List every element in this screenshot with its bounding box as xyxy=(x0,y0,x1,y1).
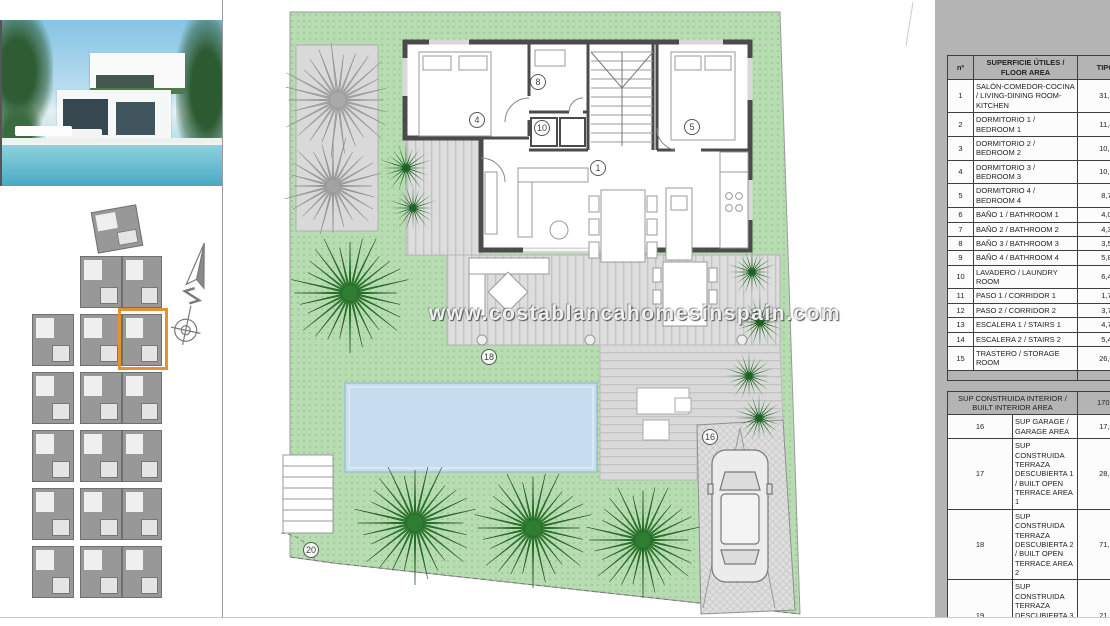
row-value: 10,25 xyxy=(1078,136,1110,160)
room-label-20: 20 xyxy=(306,545,316,555)
room-label-16: 16 xyxy=(705,432,715,442)
row-number: 5 xyxy=(948,184,974,208)
row-description: DORMITORIO 4 / BEDROOM 4 xyxy=(974,184,1078,208)
photo-villa-upper-floor xyxy=(90,53,185,91)
photo-upper-window xyxy=(96,75,155,88)
row-number: 4 xyxy=(948,160,974,184)
room-label-18: 18 xyxy=(484,352,494,362)
kitchen-sink xyxy=(671,196,687,210)
area-table-panel: nº SUPERFICIE ÚTILES / FLOOR AREA TIPO 2… xyxy=(935,0,1110,617)
site-plan-plot xyxy=(80,314,122,366)
row-description: PASO 1 / CORRIDOR 1 xyxy=(974,289,1078,303)
row-number: 11 xyxy=(948,289,974,303)
row-description: LAVADERO / LAUNDRY ROOM xyxy=(974,265,1078,289)
site-plan-plot xyxy=(32,372,74,424)
table-row: 17 SUP CONSTRUIDA TERRAZA DESCUBIERTA 1 … xyxy=(948,439,1110,510)
selected-plot-highlight xyxy=(118,308,168,370)
deck-column xyxy=(585,335,595,345)
site-plan-plot xyxy=(80,372,122,424)
compass-zigzag xyxy=(183,286,202,305)
row-number: 10 xyxy=(948,265,974,289)
row-number: 13 xyxy=(948,318,974,332)
spacer-row xyxy=(948,370,1110,380)
row-description: DORMITORIO 2 / BEDROOM 2 xyxy=(974,136,1078,160)
row-value: 28,35 xyxy=(1078,439,1110,510)
row-value: 6,45 xyxy=(1078,265,1110,289)
built-interior-label: SUP CONSTRUIDA INTERIOR / BUILT INTERIOR… xyxy=(948,391,1078,415)
table-row: 9 BAÑO 4 / BATHROOM 4 5,80 xyxy=(948,251,1110,265)
row-description: BAÑO 1 / BATHROOM 1 xyxy=(974,208,1078,222)
row-number: 8 xyxy=(948,236,974,250)
row-description: PASO 2 / CORRIDOR 2 xyxy=(974,303,1078,317)
table-row: 4 DORMITORIO 3 / BEDROOM 3 10,10 xyxy=(948,160,1110,184)
table-row: 8 BAÑO 3 / BATHROOM 3 3,50 xyxy=(948,236,1110,250)
row-description: DORMITORIO 3 / BEDROOM 3 xyxy=(974,160,1078,184)
watermark: www.costablancahomesinspain.com xyxy=(405,302,865,326)
row-description: SUP CONSTRUIDA TERRAZA DESCUBIERTA 3 / B… xyxy=(1013,580,1078,617)
row-number: 16 xyxy=(948,415,1013,439)
north-arrow-compass xyxy=(165,238,223,356)
row-value: 71,15 xyxy=(1078,509,1110,580)
neighbor-boundary-line xyxy=(906,2,913,46)
row-value: 8,70 xyxy=(1078,184,1110,208)
row-number: 9 xyxy=(948,251,974,265)
photo-swimming-pool xyxy=(2,143,222,186)
row-value: 1,70 xyxy=(1078,289,1110,303)
fridge xyxy=(720,152,748,172)
table-row: 19 SUP CONSTRUIDA TERRAZA DESCUBIERTA 3 … xyxy=(948,580,1110,617)
site-plan-plot xyxy=(32,546,74,598)
table-row: 15 TRASTERO / STORAGE ROOM 26,05 xyxy=(948,346,1110,370)
site-plan-plot xyxy=(32,430,74,482)
row-description: BAÑO 3 / BATHROOM 3 xyxy=(974,236,1078,250)
row-description: SUP CONSTRUIDA TERRAZA DESCUBIERTA 1 / B… xyxy=(1013,439,1078,510)
table-row: 6 BAÑO 1 / BATHROOM 1 4,05 xyxy=(948,208,1110,222)
room-label-5: 5 xyxy=(689,122,694,132)
row-number: 2 xyxy=(948,113,974,137)
row-number: 6 xyxy=(948,208,974,222)
table-row: 18 SUP CONSTRUIDA TERRAZA DESCUBIERTA 2 … xyxy=(948,509,1110,580)
table-row: 3 DORMITORIO 2 / BEDROOM 2 10,25 xyxy=(948,136,1110,160)
site-plan-plot xyxy=(80,546,122,598)
row-description: ESCALERA 2 / STAIRS 2 xyxy=(974,332,1078,346)
villa-render-photo xyxy=(2,20,222,186)
row-value: 5,40 xyxy=(1078,332,1110,346)
urbanization-site-plan xyxy=(20,220,170,605)
sofa xyxy=(518,168,588,182)
table-row: 13 ESCALERA 1 / STAIRS 1 4,70 xyxy=(948,318,1110,332)
row-description: ESCALERA 1 / STAIRS 1 xyxy=(974,318,1078,332)
row-description: BAÑO 2 / BATHROOM 2 xyxy=(974,222,1078,236)
site-plan-plot xyxy=(80,256,122,308)
site-plan-plot xyxy=(122,372,162,424)
photo-loungers xyxy=(15,126,72,136)
table-row: 2 DORMITORIO 1 / BEDROOM 1 11,40 xyxy=(948,113,1110,137)
bathroom-basin xyxy=(535,50,565,66)
row-number: 1 xyxy=(948,80,974,113)
table-row: 14 ESCALERA 2 / STAIRS 2 5,40 xyxy=(948,332,1110,346)
coffee-table xyxy=(550,221,568,239)
tv-bench xyxy=(485,172,497,234)
row-value: 4,05 xyxy=(1078,208,1110,222)
row-description: SALÓN-COMEDOR-COCINA / LIVING-DINING ROO… xyxy=(974,80,1078,113)
car-top-view xyxy=(708,450,772,582)
floor-plan-sheet: { "plan": { "watermark": "www.costablanc… xyxy=(0,0,1110,626)
table-row: 11 PASO 1 / CORRIDOR 1 1,70 xyxy=(948,289,1110,303)
row-number: 19 xyxy=(948,580,1013,617)
col-number-header: nº xyxy=(948,56,974,80)
swimming-pool xyxy=(345,383,597,472)
row-number: 7 xyxy=(948,222,974,236)
site-plan-plot xyxy=(122,488,162,540)
row-description: DORMITORIO 1 / BEDROOM 1 xyxy=(974,113,1078,137)
site-plan-plot xyxy=(122,430,162,482)
row-value: 11,40 xyxy=(1078,113,1110,137)
floor-area-table: nº SUPERFICIE ÚTILES / FLOOR AREA TIPO 2… xyxy=(947,55,1110,381)
site-plan-plot xyxy=(80,430,122,482)
row-value: 3,75 xyxy=(1078,303,1110,317)
row-value: 26,05 xyxy=(1078,346,1110,370)
table-row: 16 SUP GARAGE / GARAGE AREA 17,05 xyxy=(948,415,1110,439)
page-bottom-rule xyxy=(0,617,1110,618)
site-plan-plot xyxy=(122,546,162,598)
row-description: BAÑO 4 / BATHROOM 4 xyxy=(974,251,1078,265)
row-value: 21,65 xyxy=(1078,580,1110,617)
table-row: 1 SALÓN-COMEDOR-COCINA / LIVING-DINING R… xyxy=(948,80,1110,113)
row-value: 17,05 xyxy=(1078,415,1110,439)
col-type-header: TIPO 2 xyxy=(1078,56,1110,80)
site-plan-plot xyxy=(91,204,144,253)
site-plan-plot xyxy=(32,488,74,540)
table-header-row: nº SUPERFICIE ÚTILES / FLOOR AREA TIPO 2 xyxy=(948,56,1110,80)
row-description: SUP CONSTRUIDA TERRAZA DESCUBIERTA 2 / B… xyxy=(1013,509,1078,580)
deck-column xyxy=(477,335,487,345)
row-value: 4,35 xyxy=(1078,222,1110,236)
access-stairs xyxy=(283,455,333,533)
row-description: TRASTERO / STORAGE ROOM xyxy=(974,346,1078,370)
room-label-4: 4 xyxy=(474,115,479,125)
row-description: SUP GARAGE / GARAGE AREA xyxy=(1013,415,1078,439)
row-number: 12 xyxy=(948,303,974,317)
built-area-table: SUP CONSTRUIDA INTERIOR / BUILT INTERIOR… xyxy=(947,391,1110,617)
row-value: 31,15 xyxy=(1078,80,1110,113)
row-value: 5,80 xyxy=(1078,251,1110,265)
row-value: 4,70 xyxy=(1078,318,1110,332)
col-description-header: SUPERFICIE ÚTILES / FLOOR AREA xyxy=(974,56,1078,80)
stove-burner xyxy=(726,193,733,200)
row-number: 17 xyxy=(948,439,1013,510)
room-label-10: 10 xyxy=(537,123,547,133)
row-value: 3,50 xyxy=(1078,236,1110,250)
site-plan-plot xyxy=(80,488,122,540)
built-interior-value: 170,13 xyxy=(1078,391,1110,415)
room-label-1: 1 xyxy=(595,163,600,173)
table-row: 12 PASO 2 / CORRIDOR 2 3,75 xyxy=(948,303,1110,317)
row-number: 3 xyxy=(948,136,974,160)
table-row: 7 BAÑO 2 / BATHROOM 2 4,35 xyxy=(948,222,1110,236)
row-value: 10,10 xyxy=(1078,160,1110,184)
site-plan-plot xyxy=(32,314,74,366)
row-number: 18 xyxy=(948,509,1013,580)
dining-table xyxy=(601,190,645,262)
photo-villa-lower-floor xyxy=(57,90,171,138)
row-number: 14 xyxy=(948,332,974,346)
row-number: 15 xyxy=(948,346,974,370)
room-label-8: 8 xyxy=(535,77,540,87)
site-plan-plot xyxy=(122,256,162,308)
deck-column xyxy=(737,335,747,345)
table-row: 10 LAVADERO / LAUNDRY ROOM 6,45 xyxy=(948,265,1110,289)
built-interior-row: SUP CONSTRUIDA INTERIOR / BUILT INTERIOR… xyxy=(948,391,1110,415)
photo-glass-window xyxy=(116,102,155,135)
table-row: 5 DORMITORIO 4 / BEDROOM 4 8,70 xyxy=(948,184,1110,208)
